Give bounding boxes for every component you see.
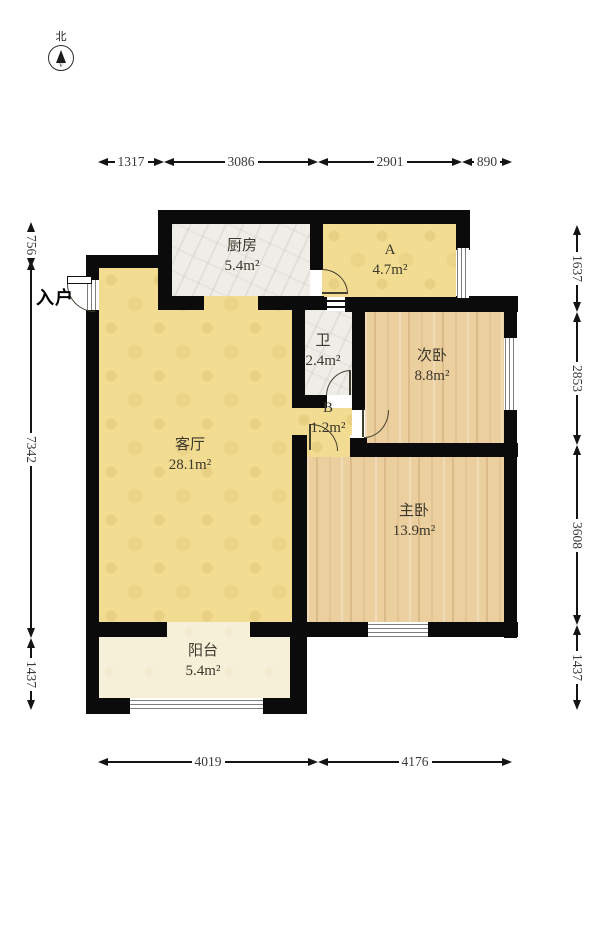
dim-arrow-icon [452,158,462,166]
dim-arrow-icon [318,758,328,766]
dim-right-4: 1437 [570,625,584,710]
dim-value: 4176 [399,754,432,770]
dim-arrow-icon [573,302,581,312]
dim-right-1: 1637 [570,225,584,312]
dim-arrow-icon [573,435,581,445]
dim-value: 1437 [569,651,585,684]
compass-ring: v [48,45,74,71]
dim-value: 2853 [569,362,585,395]
dim-arrow-icon [27,222,35,232]
window [457,248,469,298]
master-bedroom-label: 主卧 13.9m² [393,501,435,542]
window [505,338,516,410]
dim-arrow-icon [462,158,472,166]
vent-window [327,297,345,311]
dim-value: 756 [23,232,39,258]
balcony-area: 5.4m² [186,661,221,681]
dim-arrow-icon [318,158,328,166]
dim-top-1: 1317 [98,155,164,169]
dim-right-3: 3608 [570,445,584,625]
dim-left-3: 1437 [24,638,38,710]
dim-left-1: 756 [24,222,38,260]
window [368,624,428,637]
dim-value: 3608 [569,519,585,552]
dim-arrow-icon [573,312,581,322]
dim-arrow-icon [308,758,318,766]
wall [352,310,365,410]
wall [158,296,204,310]
dim-arrow-icon [573,700,581,710]
dim-arrow-icon [98,758,108,766]
balcony-label: 阳台 5.4m² [186,641,221,682]
wall [263,698,307,714]
hall-b-name: B [311,398,346,418]
dim-arrow-icon [27,700,35,710]
kitchen-area: 5.4m² [225,256,260,276]
wall [456,296,518,312]
balcony-window [130,699,263,709]
dim-value: 2901 [374,154,407,170]
wall [86,310,99,712]
room-a-name: A [373,240,408,260]
entry-door-leaf [67,276,92,284]
dim-value: 890 [474,154,500,170]
dim-right-2: 2853 [570,312,584,445]
dim-arrow-icon [27,638,35,648]
dim-value: 1437 [23,658,39,691]
living-room-label: 客厅 28.1m² [169,435,211,476]
entrance-label: 入户 [36,284,74,310]
wall [292,310,305,408]
dim-value: 4019 [192,754,225,770]
wall [428,622,518,637]
living-room-name: 客厅 [169,435,211,455]
kitchen-name: 厨房 [225,236,260,256]
compass: 北 v [44,32,78,71]
dim-arrow-icon [27,628,35,638]
bathroom-label: 卫 2.4m² [306,331,341,372]
dim-arrow-icon [98,158,108,166]
second-bedroom-label: 次卧 8.8m² [415,346,450,387]
wall [258,296,324,310]
wall [158,210,470,224]
dim-top-4: 890 [462,155,512,169]
bathroom-name: 卫 [306,331,341,351]
dim-left-2: 7342 [24,260,38,638]
dim-arrow-icon [164,158,174,166]
dim-value: 3086 [225,154,258,170]
dim-bottom-2: 4176 [318,755,512,769]
compass-north-label: 北 [44,32,78,43]
dim-arrow-icon [573,445,581,455]
floor-plan: 北 v [0,0,609,927]
hall-b-area: 1.2m² [311,418,346,438]
dim-arrow-icon [27,260,35,270]
dim-top-3: 2901 [318,155,462,169]
wall [310,224,323,270]
wall [504,312,517,338]
dim-value: 1317 [115,154,148,170]
wall [456,210,470,250]
dim-value: 1637 [569,252,585,285]
dim-arrow-icon [573,225,581,235]
room-a-area: 4.7m² [373,260,408,280]
dim-arrow-icon [502,758,512,766]
kitchen-label: 厨房 5.4m² [225,236,260,277]
wall [365,443,518,457]
dim-arrow-icon [502,158,512,166]
wall [307,622,368,637]
master-bedroom-area: 13.9m² [393,521,435,541]
dim-arrow-icon [573,615,581,625]
wall [292,435,307,637]
balcony-name: 阳台 [186,641,221,661]
compass-notch: v [59,63,63,67]
dim-arrow-icon [308,158,318,166]
living-room-area: 28.1m² [169,455,211,475]
dim-arrow-icon [154,158,164,166]
dim-value: 7342 [23,433,39,466]
wall [86,622,167,637]
dim-top-2: 3086 [164,155,318,169]
dim-arrow-icon [573,625,581,635]
hall-b-label: B 1.2m² [311,398,346,439]
second-bedroom-name: 次卧 [415,346,450,366]
second-bedroom-area: 8.8m² [415,366,450,386]
room-a-label: A 4.7m² [373,240,408,281]
bathroom-area: 2.4m² [306,351,341,371]
dim-bottom-1: 4019 [98,755,318,769]
wall [86,698,130,714]
master-bedroom-name: 主卧 [393,501,435,521]
